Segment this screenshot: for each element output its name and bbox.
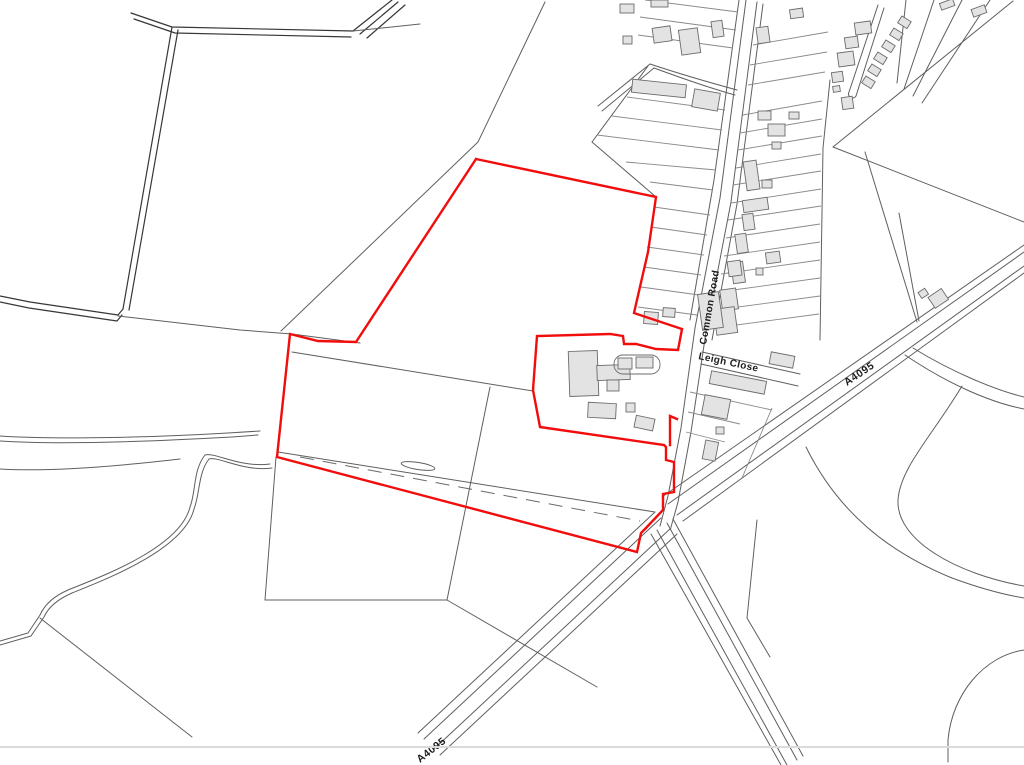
field-topleft [0, 0, 545, 343]
map-canvas: Common Road Leigh Close A4095 A4095 [0, 0, 1024, 765]
label-a4095-lower: A4095 [414, 735, 448, 765]
field-southwest [0, 387, 597, 737]
fields-east [806, 0, 1024, 762]
center-tracks [0, 352, 655, 521]
map-labels: Common Road Leigh Close A4095 A4095 [414, 269, 876, 765]
label-leigh-close: Leigh Close [697, 351, 759, 374]
site-plan-svg: Common Road Leigh Close A4095 A4095 [0, 0, 1024, 765]
site-boundary-spur [670, 416, 677, 445]
farm-buildings [568, 350, 660, 430]
